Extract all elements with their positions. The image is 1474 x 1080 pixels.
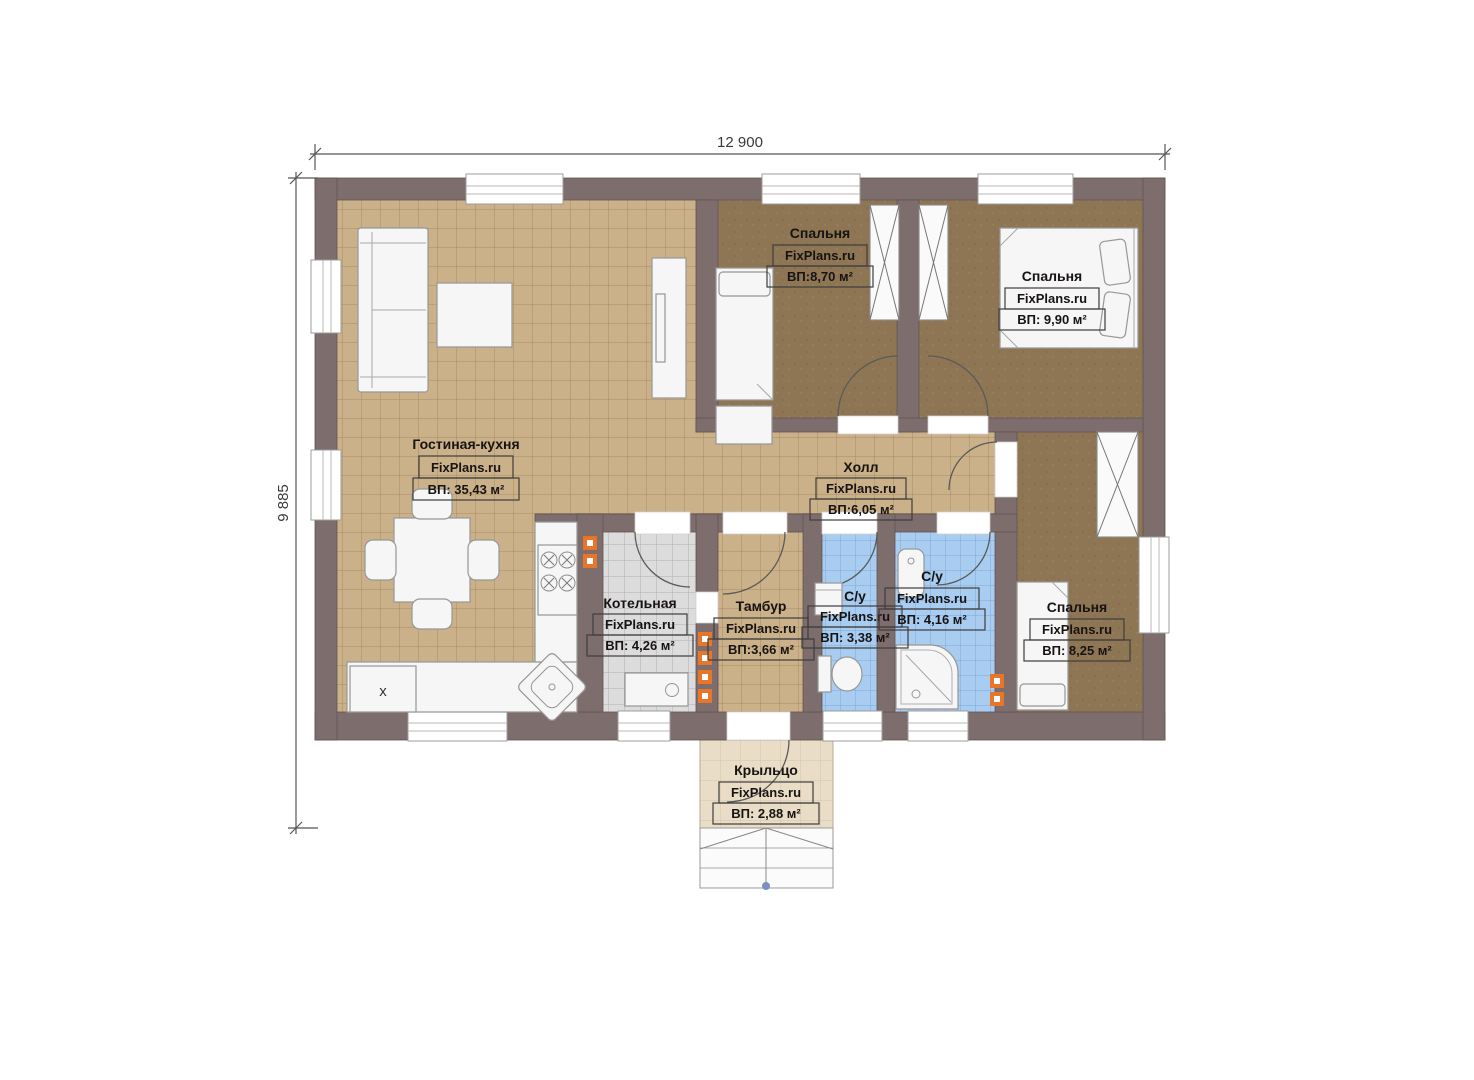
dimension-top: 12 900 bbox=[309, 134, 1171, 170]
entrance-door bbox=[727, 712, 790, 740]
sofa-icon bbox=[358, 228, 428, 392]
window-bathroom1-bottom bbox=[823, 711, 882, 741]
brand-watermark: FixPlans.ru bbox=[897, 591, 967, 606]
wardrobe-bedroom3-icon bbox=[1097, 432, 1138, 537]
brand-watermark: FixPlans.ru bbox=[605, 617, 675, 632]
window-bedroom3-right bbox=[1139, 537, 1169, 633]
porch-steps bbox=[700, 828, 833, 890]
brand-watermark: FixPlans.ru bbox=[431, 460, 501, 475]
svg-text:С/у: С/у bbox=[844, 588, 866, 604]
svg-text:ВП: 4,16 м²: ВП: 4,16 м² bbox=[897, 612, 967, 627]
svg-text:Спальня: Спальня bbox=[1022, 268, 1082, 284]
boiler-icon bbox=[625, 673, 688, 706]
fridge-icon: x bbox=[350, 666, 416, 712]
window-bedroom2-top bbox=[978, 174, 1073, 204]
dimension-width-label: 12 900 bbox=[717, 134, 763, 151]
brand-watermark: FixPlans.ru bbox=[1042, 622, 1112, 637]
bedroom-1-door bbox=[838, 416, 898, 434]
svg-text:x: x bbox=[379, 683, 387, 700]
wardrobe-bedroom2-icon bbox=[919, 205, 948, 320]
brand-watermark: FixPlans.ru bbox=[785, 248, 855, 263]
svg-text:ВП:3,66 м²: ВП:3,66 м² bbox=[728, 642, 795, 657]
svg-text:Гостиная-кухня: Гостиная-кухня bbox=[412, 436, 519, 452]
wall-exterior-right bbox=[1143, 178, 1165, 740]
vestibule-door bbox=[723, 512, 787, 534]
bedroom-2-door bbox=[928, 416, 988, 434]
svg-text:Тамбур: Тамбур bbox=[736, 598, 787, 614]
svg-text:Котельная: Котельная bbox=[603, 595, 676, 611]
dimension-height-label: 9 885 bbox=[275, 484, 292, 522]
svg-text:ВП: 2,88 м²: ВП: 2,88 м² bbox=[731, 806, 801, 821]
window-boiler-bottom bbox=[618, 711, 670, 741]
brand-watermark: FixPlans.ru bbox=[726, 621, 796, 636]
svg-text:С/у: С/у bbox=[921, 568, 943, 584]
window-bathroom2-bottom bbox=[908, 711, 968, 741]
brand-watermark: FixPlans.ru bbox=[826, 481, 896, 496]
window-living-left-lower bbox=[311, 450, 341, 520]
stove-icon bbox=[538, 545, 577, 615]
floor-plan-page: x bbox=[0, 0, 1474, 1080]
svg-text:Крыльцо: Крыльцо bbox=[734, 762, 798, 778]
svg-text:ВП:8,70 м²: ВП:8,70 м² bbox=[787, 269, 854, 284]
coffee-table-icon bbox=[437, 283, 512, 347]
floor-plan-drawing: x bbox=[0, 0, 1474, 1080]
tv-stand-icon bbox=[652, 258, 686, 398]
wall-bedroom1-bedroom2 bbox=[897, 200, 919, 432]
step-reference-dot bbox=[762, 882, 770, 890]
bedroom-3-door bbox=[995, 442, 1017, 497]
wall-living-bedroom1 bbox=[696, 200, 718, 432]
wardrobe-bedroom1-icon bbox=[870, 205, 899, 320]
bed-single-1-icon bbox=[716, 268, 773, 444]
svg-text:ВП: 8,25 м²: ВП: 8,25 м² bbox=[1042, 643, 1112, 658]
svg-text:ВП:6,05 м²: ВП:6,05 м² bbox=[828, 502, 895, 517]
brand-watermark: FixPlans.ru bbox=[731, 785, 801, 800]
toilet-icon bbox=[818, 656, 862, 692]
svg-text:ВП: 3,38 м²: ВП: 3,38 м² bbox=[820, 630, 890, 645]
svg-text:Спальня: Спальня bbox=[790, 225, 850, 241]
water-heater-icon bbox=[898, 549, 924, 597]
window-bedroom1-top bbox=[762, 174, 860, 204]
window-living-left-upper bbox=[311, 260, 341, 333]
shower-tray-icon bbox=[896, 645, 958, 709]
svg-text:ВП: 4,26 м²: ВП: 4,26 м² bbox=[605, 638, 675, 653]
window-living-top bbox=[466, 174, 563, 204]
svg-text:Холл: Холл bbox=[843, 459, 878, 475]
window-living-bottom bbox=[408, 711, 507, 741]
svg-text:ВП: 35,43 м²: ВП: 35,43 м² bbox=[428, 482, 505, 497]
svg-text:Спальня: Спальня bbox=[1047, 599, 1107, 615]
svg-text:ВП: 9,90 м²: ВП: 9,90 м² bbox=[1017, 312, 1087, 327]
brand-watermark: FixPlans.ru bbox=[1017, 291, 1087, 306]
boiler-room-door bbox=[635, 512, 690, 534]
bathroom-2-door bbox=[937, 512, 990, 534]
